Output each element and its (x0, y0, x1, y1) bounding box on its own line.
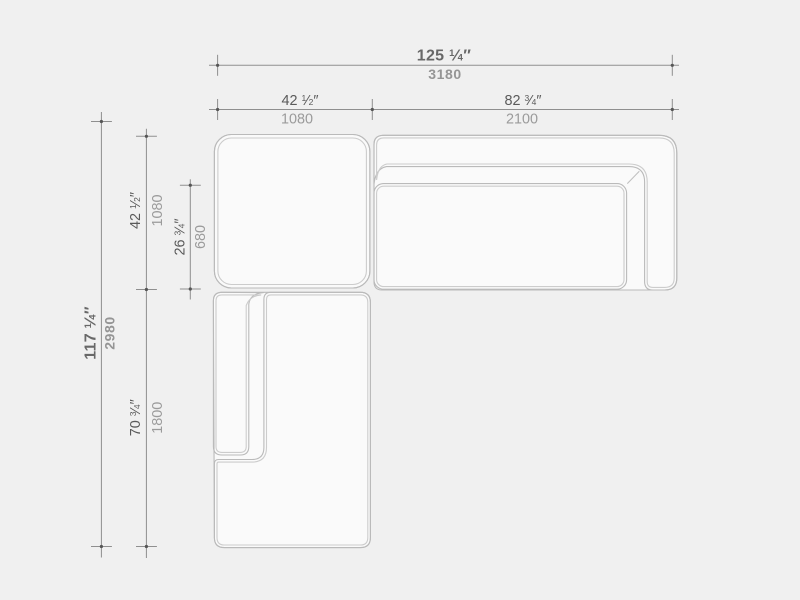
svg-text:26 3⁄4″: 26 3⁄4″ (172, 219, 188, 256)
svg-text:2980: 2980 (102, 316, 118, 350)
svg-text:125 1⁄4″: 125 1⁄4″ (417, 48, 472, 65)
svg-text:2100: 2100 (506, 111, 538, 127)
svg-text:3180: 3180 (428, 66, 462, 82)
svg-text:42 1⁄2″: 42 1⁄2″ (282, 93, 319, 109)
svg-text:117 1⁄4″: 117 1⁄4″ (83, 306, 100, 360)
svg-text:680: 680 (193, 225, 209, 249)
svg-text:42 1⁄2″: 42 1⁄2″ (128, 192, 144, 229)
svg-text:1080: 1080 (281, 111, 313, 127)
svg-text:82 3⁄4″: 82 3⁄4″ (505, 93, 542, 109)
svg-text:1800: 1800 (150, 402, 166, 434)
svg-text:70 3⁄4″: 70 3⁄4″ (128, 399, 144, 436)
svg-text:1080: 1080 (150, 194, 166, 226)
